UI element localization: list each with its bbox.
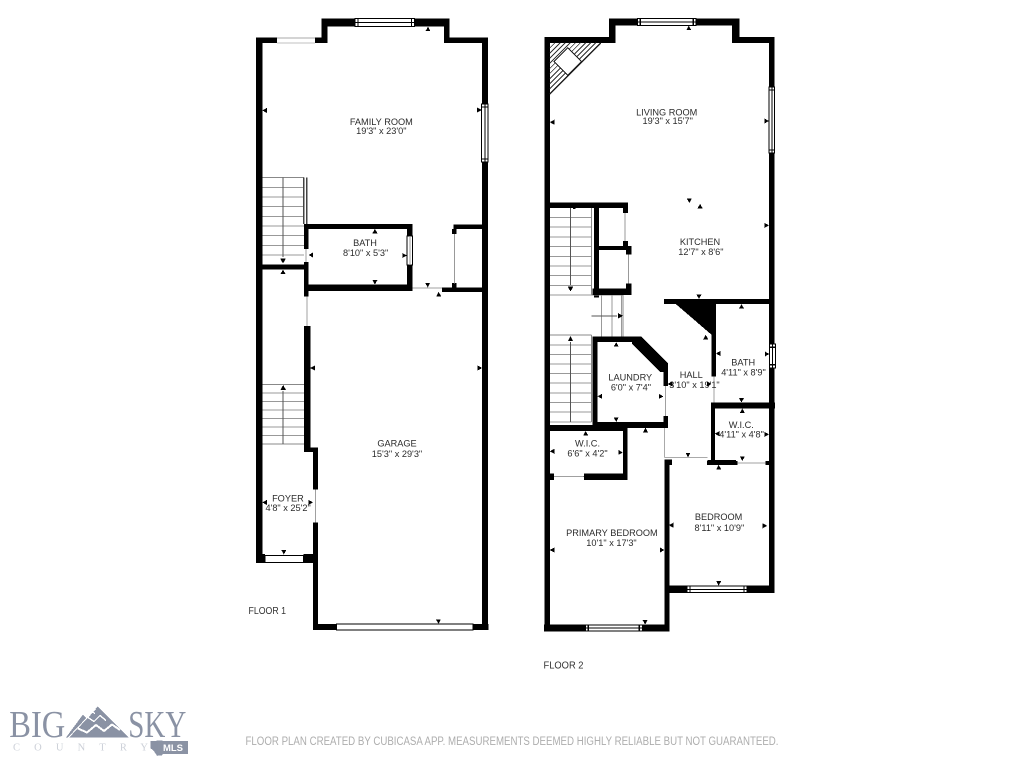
svg-text:BATH: BATH bbox=[731, 357, 755, 367]
svg-text:12'7" x 8'6": 12'7" x 8'6" bbox=[678, 247, 723, 257]
svg-text:GARAGE: GARAGE bbox=[377, 439, 416, 449]
svg-text:BIG: BIG bbox=[9, 704, 65, 746]
svg-text:PRIMARY BEDROOM: PRIMARY BEDROOM bbox=[566, 528, 658, 538]
svg-text:8'11" x 10'9": 8'11" x 10'9" bbox=[695, 523, 745, 533]
svg-text:19'3" x 23'0": 19'3" x 23'0" bbox=[356, 126, 406, 136]
svg-text:4'11" x 4'8": 4'11" x 4'8" bbox=[719, 430, 764, 440]
svg-text:6'6" x 4'2": 6'6" x 4'2" bbox=[567, 448, 607, 458]
svg-text:4'11" x 8'9": 4'11" x 8'9" bbox=[721, 367, 766, 377]
svg-text:8'10" x 5'3": 8'10" x 5'3" bbox=[343, 248, 388, 258]
svg-text:FLOOR 2: FLOOR 2 bbox=[544, 661, 584, 672]
svg-text:W.I.C.: W.I.C. bbox=[575, 438, 600, 448]
svg-text:SKY: SKY bbox=[128, 704, 186, 746]
svg-text:HALL: HALL bbox=[680, 370, 703, 380]
svg-text:10'1" x 17'3": 10'1" x 17'3" bbox=[586, 538, 636, 548]
svg-text:FLOOR 1: FLOOR 1 bbox=[249, 606, 287, 617]
svg-text:15'3" x 29'3": 15'3" x 29'3" bbox=[372, 449, 422, 459]
svg-text:3'10" x 19'1": 3'10" x 19'1" bbox=[669, 380, 719, 390]
svg-text:BEDROOM: BEDROOM bbox=[695, 512, 742, 522]
svg-text:FOYER: FOYER bbox=[272, 494, 304, 504]
svg-text:BATH: BATH bbox=[353, 238, 377, 248]
svg-text:19'3" x 15'7": 19'3" x 15'7" bbox=[643, 116, 693, 126]
svg-text:LAUNDRY: LAUNDRY bbox=[608, 372, 652, 382]
svg-text:6'0" x 7'4": 6'0" x 7'4" bbox=[611, 383, 651, 393]
svg-text:FLOOR PLAN CREATED BY CUBICASA: FLOOR PLAN CREATED BY CUBICASA APP. MEAS… bbox=[246, 736, 779, 748]
svg-text:W.I.C.: W.I.C. bbox=[729, 420, 754, 430]
svg-text:KITCHEN: KITCHEN bbox=[680, 237, 720, 247]
svg-text:MLS: MLS bbox=[163, 743, 183, 754]
svg-text:4'8" x 25'2": 4'8" x 25'2" bbox=[265, 503, 310, 513]
